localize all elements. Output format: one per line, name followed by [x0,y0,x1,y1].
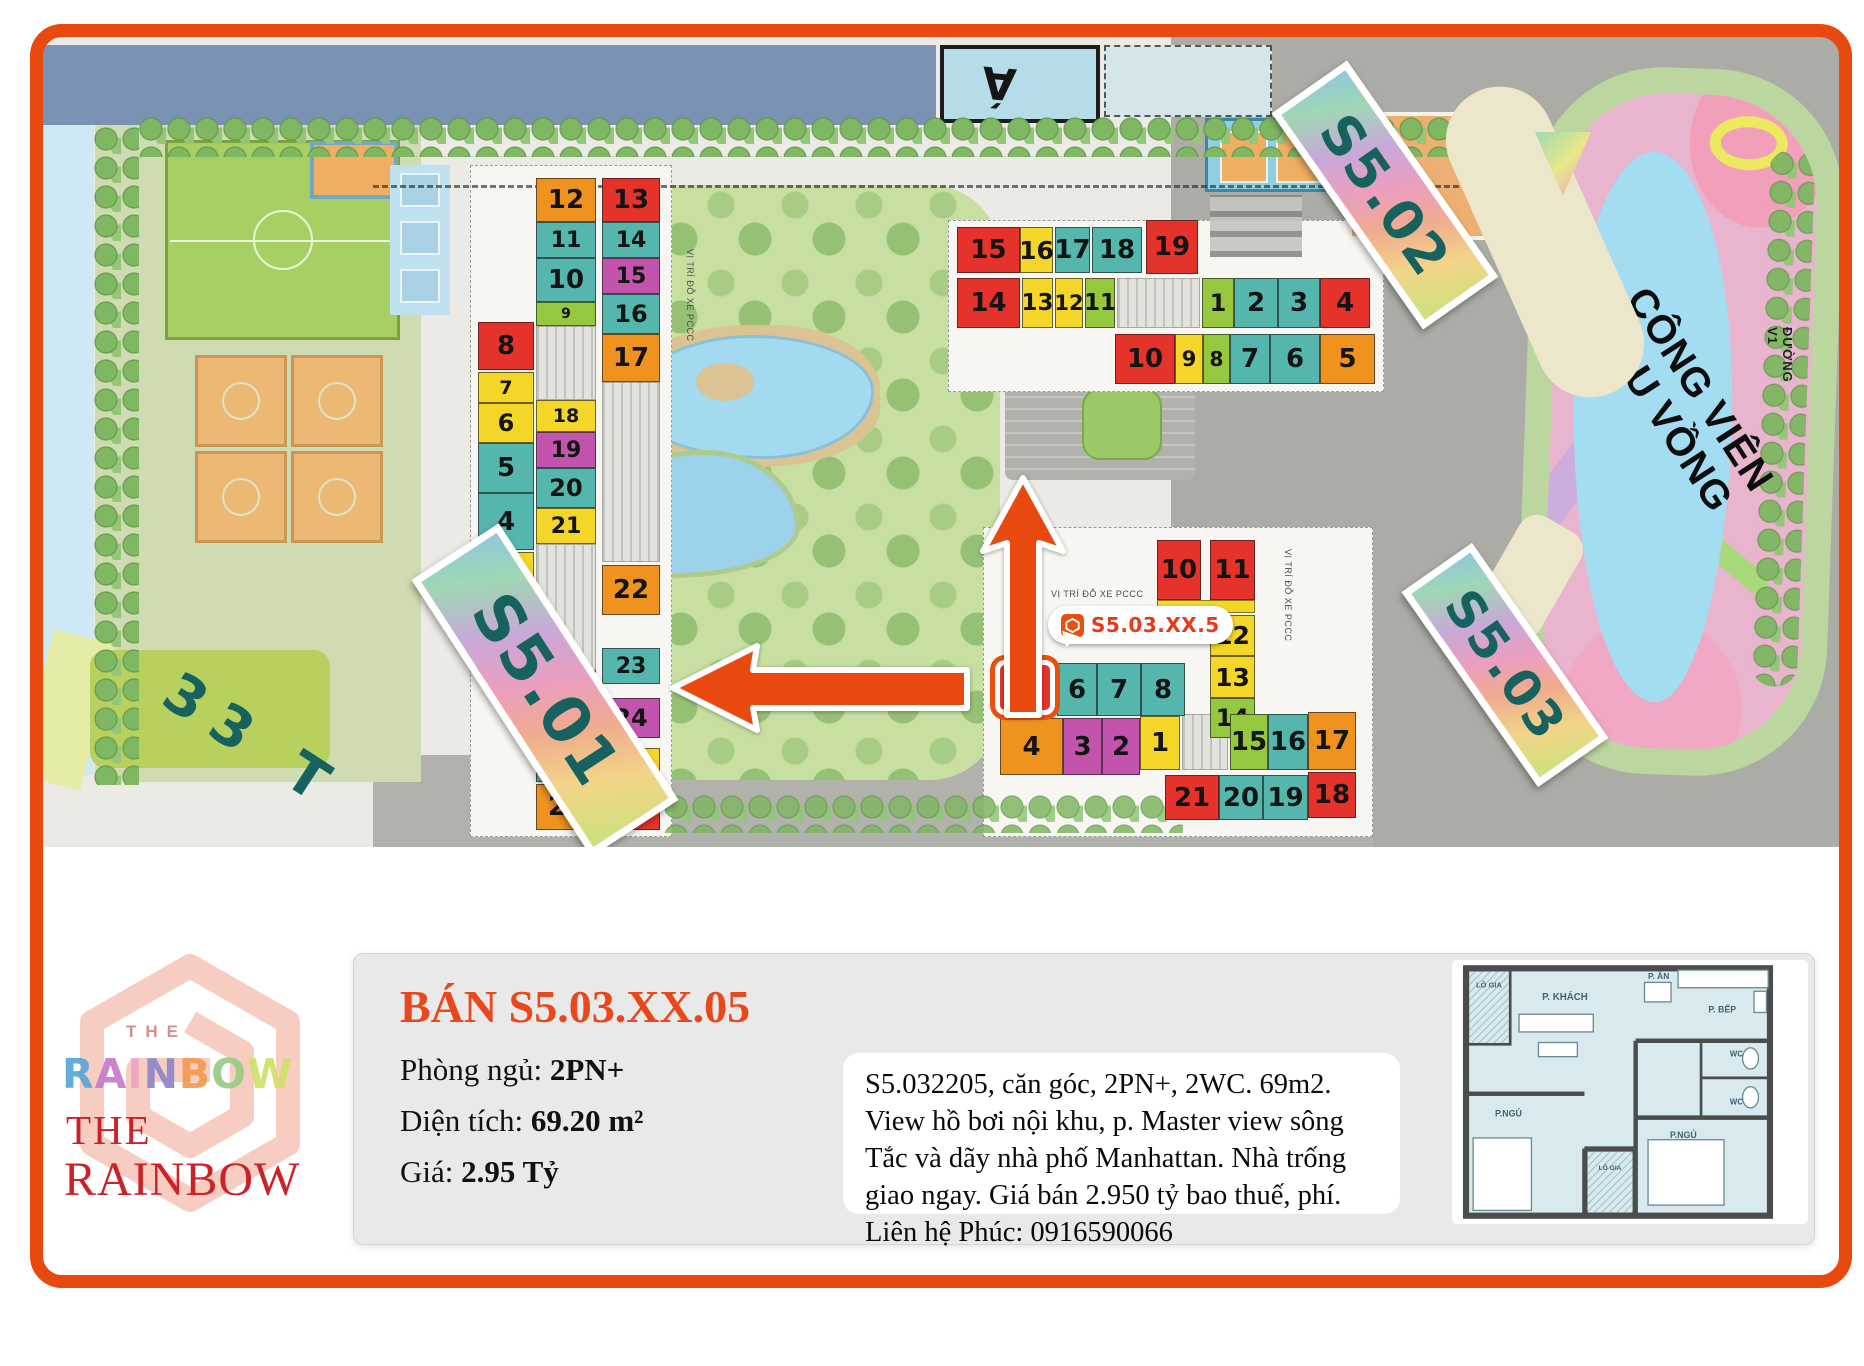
logo-rainbow-letter: A [95,1050,128,1098]
unit-s501-9: 9 [536,302,596,326]
site-map: Á [43,37,1839,847]
unit-s502-1: 1 [1202,278,1234,328]
unit-s503-17: 17 [1308,712,1356,770]
unit-s501-23: 23 [602,648,660,684]
unit-s502-9: 9 [1175,334,1203,384]
logo-rainbow-serif: RAINBOW [64,1152,300,1207]
listing-fields: Phòng ngủ: 2PN+ Diện tích: 69.20 m² Giá:… [400,1052,643,1205]
svg-text:WC: WC [1730,1097,1743,1106]
unit-s502-12: 12 [1055,278,1083,328]
unit-s503-15: 15 [1230,714,1268,770]
unit-s503-6: 6 [1057,663,1097,716]
svg-text:LÔ GIA: LÔ GIA [1599,1163,1622,1172]
unit-s502-4: 4 [1320,278,1370,328]
logo-rainbow-letter: B [179,1050,211,1098]
listing-description: S5.032205, căn góc, 2PN+, 2WC. 69m2. Vie… [843,1053,1400,1214]
unit-s503-19: 19 [1263,775,1308,820]
floorplan-box: LÔ GIA P. KHÁCH P. ĂN P. BẾP WC WC P.NGỦ… [1452,960,1808,1224]
svg-text:P.NGỦ: P.NGỦ [1670,1129,1697,1140]
unit-s502-2: 2 [1234,278,1278,328]
unit-s502-18: 18 [1092,227,1142,273]
logo-the-serif: THE [66,1106,152,1154]
unit-s501-21: 21 [536,508,596,544]
svg-text:P. KHÁCH: P. KHÁCH [1542,992,1588,1003]
unit-s501-10: 10 [536,258,596,302]
unit-s502-8: 8 [1203,334,1230,384]
unit-s501-22: 22 [602,565,660,615]
unit-s501-8: 8 [478,322,534,370]
unit-s503-10: 10 [1157,540,1201,600]
unit-s503-11: 11 [1210,540,1255,600]
unit-s502-3: 3 [1278,278,1320,328]
logo-the-small: THE [126,1022,187,1042]
logo-rainbow-colored: RAINBOW [62,1050,293,1098]
floorplan-drawing: LÔ GIA P. KHÁCH P. ĂN P. BẾP WC WC P.NGỦ… [1458,963,1778,1221]
unit-s503-4: 4 [1000,718,1063,775]
unit-s503-8: 8 [1141,663,1185,716]
unit-s503-3: 3 [1063,718,1102,775]
unit-s501-5: 5 [478,443,534,493]
brand-hexagon-icon [1061,614,1084,637]
unit-s503-13: 13 [1210,656,1255,698]
rainbow-logo-watermark [70,952,310,1252]
unit-s503-21: 21 [1165,775,1219,820]
svg-text:P. ĂN: P. ĂN [1648,971,1669,981]
unit-s502-15: 15 [957,227,1020,273]
unit-code-badge: S5.03.XX.5 [1048,606,1233,644]
logo-rainbow-letter: O [211,1050,247,1098]
unit-s502-11: 11 [1085,278,1115,328]
unit-s501-20: 20 [536,468,596,508]
unit-s501-14: 14 [602,222,660,258]
unit-s501-12: 12 [536,178,596,222]
svg-text:LÔ GIA: LÔ GIA [1476,981,1502,990]
unit-s501-13: 13 [602,178,660,222]
field-bedrooms: Phòng ngủ: 2PN+ [400,1052,643,1088]
unit-s501-7: 7 [478,372,534,403]
unit-s503-20: 20 [1219,775,1263,820]
field-area: Diện tích: 69.20 m² [400,1103,643,1139]
unit-s501-6: 6 [478,403,534,443]
unit-s501-15: 15 [602,258,660,294]
unit-s502-10: 10 [1115,334,1175,384]
unit-s501-17: 17 [602,334,660,382]
logo-rainbow-letter: R [62,1050,95,1098]
unit-s503-16: 16 [1268,714,1308,770]
unit-s502-6: 6 [1270,334,1320,384]
unit-s501-11: 11 [536,222,596,258]
unit-s502-16: 16 [1020,227,1053,273]
unit-s503-18: 18 [1308,772,1356,818]
unit-s502-13: 13 [1022,278,1053,328]
field-price: Giá: 2.95 Tỷ [400,1154,643,1190]
logo-rainbow-letter: W [247,1050,293,1098]
svg-text:P.NGỦ: P.NGỦ [1495,1108,1522,1119]
logo-rainbow-letter: N [144,1050,179,1098]
unit-s502-14: 14 [957,278,1020,328]
unit-s502-17: 17 [1055,227,1090,273]
unit-s502-19: 19 [1146,220,1198,274]
unit-s502-5: 5 [1320,334,1375,384]
svg-text:WC: WC [1730,1050,1743,1059]
unit-s503-1: 1 [1140,716,1180,770]
logo-rainbow-letter: I [127,1050,143,1098]
listing-title: BÁN S5.03.XX.05 [400,980,750,1033]
unit-code-text: S5.03.XX.5 [1091,613,1220,637]
unit-s503-7: 7 [1097,663,1141,716]
unit-s503-5: 5 [995,660,1055,715]
unit-s503-2: 2 [1102,718,1140,775]
unit-s501-18: 18 [536,400,596,432]
svg-text:P. BẾP: P. BẾP [1708,1004,1736,1014]
unit-s501-16: 16 [602,294,660,334]
unit-s501-19: 19 [536,432,596,468]
unit-s502-7: 7 [1230,334,1270,384]
